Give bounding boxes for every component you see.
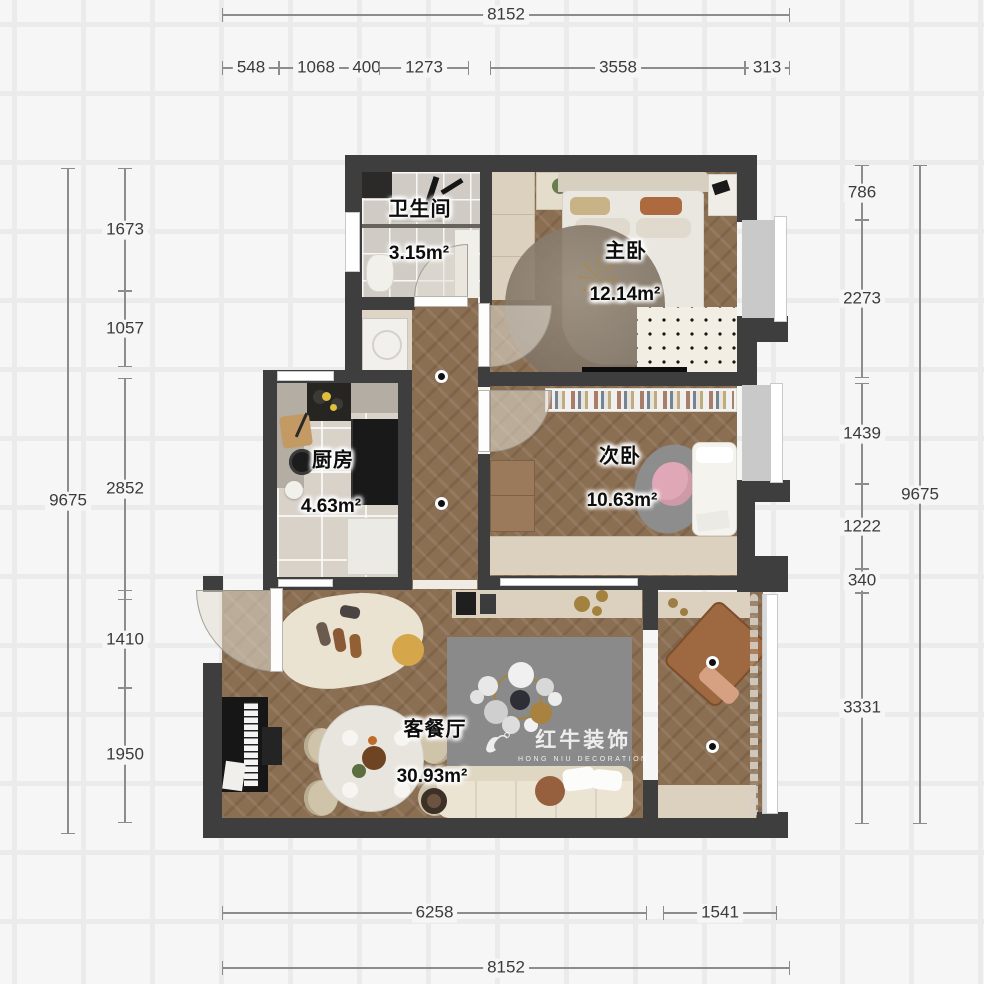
entry-door-arc bbox=[196, 590, 278, 672]
room-area-living: 30.93m² bbox=[397, 766, 468, 788]
pouf-yellow bbox=[392, 634, 424, 666]
wardrobe-seam bbox=[490, 495, 535, 496]
bedroom2-slider bbox=[500, 578, 638, 586]
dim-bottom-seg: 1541 bbox=[663, 906, 777, 920]
gold-tray bbox=[574, 596, 590, 612]
bedroom2-bay-window bbox=[770, 383, 783, 483]
ceiling-light bbox=[706, 740, 719, 753]
room-label-master: 主卧 bbox=[605, 235, 647, 264]
pillow bbox=[696, 447, 733, 463]
balcony-mat-bottom bbox=[658, 785, 756, 818]
kitchen-slider bbox=[278, 579, 333, 587]
hongniu-logo-icon bbox=[482, 729, 512, 759]
bathroom-door-leaf bbox=[414, 296, 468, 307]
stove bbox=[307, 383, 351, 421]
wardrobe-seam bbox=[492, 214, 534, 215]
chandelier-gold bbox=[530, 702, 552, 724]
dim-left-seg: 1673 bbox=[118, 168, 132, 292]
dim-top-seg: 1273 bbox=[379, 61, 469, 75]
round-pillow-brown bbox=[535, 776, 565, 806]
dim-left-seg: 1057 bbox=[118, 290, 132, 367]
hall-threshold bbox=[413, 580, 477, 589]
wall-right-bedroom2 bbox=[737, 342, 757, 385]
dim-top-seg: 313 bbox=[744, 61, 790, 75]
dim-top-seg: 1068 bbox=[278, 61, 354, 75]
dim-top-seg: 548 bbox=[222, 61, 280, 75]
room-area-bedroom2: 10.63m² bbox=[587, 490, 658, 512]
gold-tray bbox=[680, 608, 688, 616]
hallway-floor bbox=[412, 297, 478, 590]
dim-right-seg: 340 bbox=[855, 568, 869, 594]
dim-right-seg: 1222 bbox=[855, 483, 869, 570]
room-area-master: 12.14m² bbox=[590, 284, 661, 306]
room-area-kitchen: 4.63m² bbox=[301, 496, 361, 518]
chandelier-dark bbox=[510, 690, 530, 710]
bathroom-window bbox=[345, 212, 360, 272]
bathroom-cabinet bbox=[362, 172, 392, 198]
pink-chair bbox=[652, 462, 694, 506]
curtain bbox=[750, 594, 758, 816]
chandelier-globe bbox=[470, 690, 484, 704]
food-dish bbox=[368, 736, 377, 745]
piano-bench bbox=[262, 727, 282, 765]
flowers-yellow bbox=[322, 392, 331, 401]
watermark-subtitle: HONG NIU DECORATION bbox=[518, 756, 649, 763]
room-label-bathroom: 卫生间 bbox=[389, 193, 452, 222]
shoes bbox=[349, 634, 362, 659]
wall-balcony-step bbox=[755, 556, 788, 592]
dim-bottom-total: 8152 bbox=[222, 961, 790, 975]
master-bay-sill bbox=[742, 220, 776, 318]
wall-living-left bbox=[203, 663, 222, 838]
wall-top bbox=[345, 155, 757, 172]
room-label-bedroom2: 次卧 bbox=[599, 440, 641, 469]
wall-bathroom-right bbox=[480, 155, 492, 305]
dim-top-seg: 400 bbox=[352, 61, 381, 75]
floorplan-canvas: 卫生间 3.15m² 主卧 12.14m² 次卧 10.63m² 厨房 4.63… bbox=[0, 0, 984, 984]
pillow bbox=[640, 197, 682, 215]
coffee-machine bbox=[456, 592, 476, 615]
sheet-music bbox=[222, 761, 246, 792]
books bbox=[548, 391, 734, 409]
master-door-leaf bbox=[478, 303, 490, 367]
bedroom2-bay-sill bbox=[742, 385, 772, 481]
wall-balcony-divider-top bbox=[643, 588, 658, 630]
wall-balcony-divider-bottom bbox=[643, 780, 658, 820]
chandelier-globe bbox=[508, 662, 534, 688]
pillow bbox=[591, 768, 623, 791]
second-wardrobe bbox=[490, 460, 535, 532]
dim-right-seg: 3331 bbox=[855, 592, 869, 824]
piano-keys bbox=[244, 702, 258, 787]
gold-tray bbox=[596, 590, 608, 602]
plate bbox=[342, 730, 358, 746]
ceiling-light bbox=[435, 370, 448, 383]
dim-right-seg: 2273 bbox=[855, 219, 869, 378]
wall-kitchen-left bbox=[263, 370, 277, 590]
dim-bottom-seg: 6258 bbox=[222, 906, 647, 920]
dim-top-total: 8152 bbox=[222, 8, 790, 22]
room-label-kitchen: 厨房 bbox=[312, 444, 354, 473]
washer-door bbox=[372, 330, 402, 360]
wall-master-bottom bbox=[478, 372, 757, 386]
table-greens bbox=[352, 764, 366, 778]
watermark: 红牛装饰 HONG NIU DECORATION bbox=[482, 724, 649, 763]
second-bottom-cabinet bbox=[490, 536, 737, 575]
side-table bbox=[421, 788, 447, 814]
master-bed-headboard bbox=[558, 172, 708, 192]
wall-balcony-right-bottom bbox=[757, 812, 788, 838]
dim-left-total: 9675 bbox=[61, 168, 75, 834]
ceiling-light bbox=[435, 497, 448, 510]
room-label-living: 客餐厅 bbox=[404, 713, 467, 742]
kitchen-base-cabinet bbox=[347, 518, 398, 575]
master-bay-window bbox=[774, 216, 787, 322]
dim-left-seg: 2852 bbox=[118, 378, 132, 600]
food-dish bbox=[362, 746, 386, 770]
dim-top-seg: 3558 bbox=[490, 61, 746, 75]
pillow bbox=[570, 197, 610, 215]
bedroom2-door-leaf bbox=[478, 390, 490, 452]
entry-door-leaf bbox=[270, 588, 283, 672]
dim-left-seg: 1950 bbox=[118, 687, 132, 823]
wall-bottom bbox=[203, 818, 770, 838]
bathroom-partition bbox=[362, 224, 480, 228]
dim-right-seg: 1439 bbox=[855, 383, 869, 485]
gold-tray bbox=[592, 606, 602, 616]
wall-bathroom-left bbox=[345, 172, 362, 375]
wall-right-top bbox=[737, 155, 757, 222]
wall-bathroom-bottom bbox=[345, 297, 415, 310]
dotted-mat bbox=[637, 307, 737, 372]
balcony-window bbox=[762, 594, 778, 814]
dim-left-seg: 1410 bbox=[118, 590, 132, 689]
chandelier-globe bbox=[548, 692, 562, 706]
wall-bedroom2-left bbox=[478, 454, 490, 590]
kitchen-window bbox=[277, 371, 334, 381]
plate bbox=[342, 782, 358, 798]
wall-kitchen-right bbox=[398, 370, 412, 590]
dim-right-total: 9675 bbox=[913, 165, 927, 824]
watermark-brand: 红牛装饰 bbox=[518, 724, 649, 754]
room-area-bathroom: 3.15m² bbox=[389, 243, 449, 265]
dim-right-seg: 786 bbox=[855, 165, 869, 221]
wall-right-lower bbox=[737, 480, 755, 592]
gold-tray bbox=[668, 598, 678, 608]
appliance bbox=[480, 594, 496, 614]
flowers-yellow bbox=[330, 404, 337, 411]
ceiling-light bbox=[706, 656, 719, 669]
fridge bbox=[351, 419, 400, 505]
